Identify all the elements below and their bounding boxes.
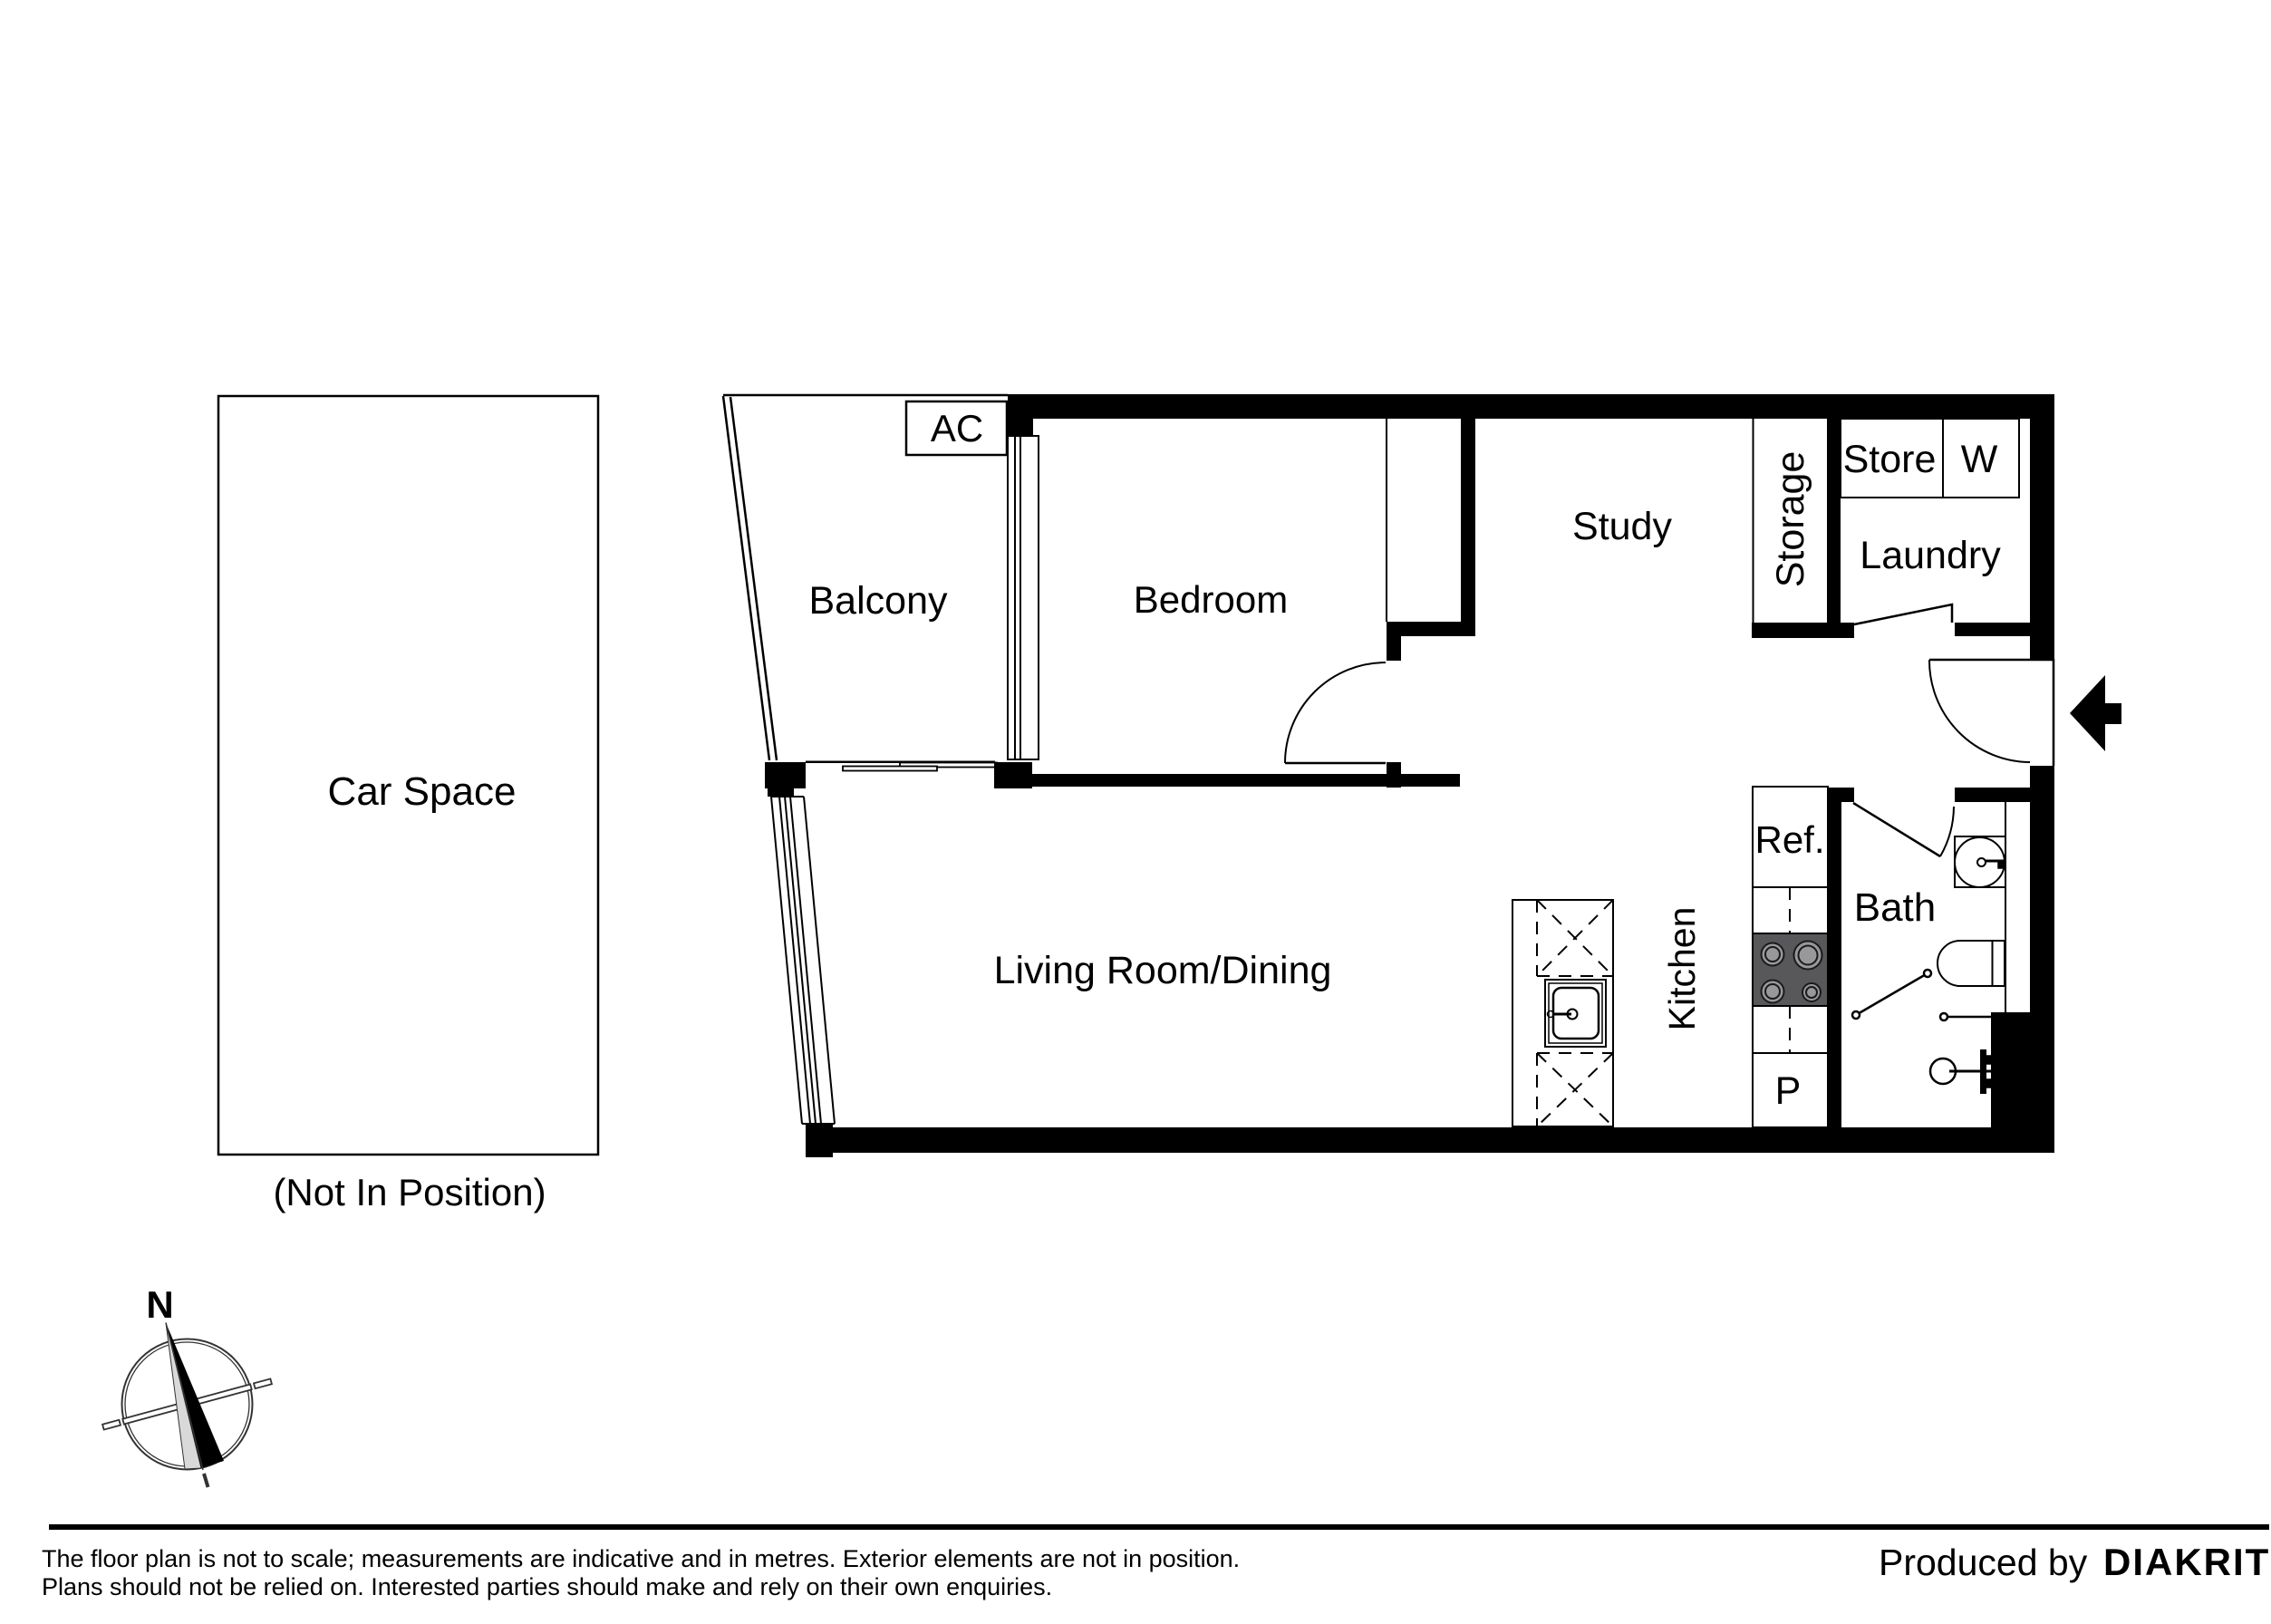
svg-text:Plans should not be relied on.: Plans should not be relied on. Intereste… bbox=[42, 1573, 1052, 1600]
svg-text:Bedroom: Bedroom bbox=[1134, 578, 1288, 621]
svg-text:Kitchen: Kitchen bbox=[1661, 907, 1703, 1031]
svg-text:Car Space: Car Space bbox=[328, 769, 517, 814]
svg-text:P: P bbox=[1775, 1069, 1802, 1113]
svg-text:Study: Study bbox=[1572, 505, 1672, 548]
svg-text:DIAKRIT: DIAKRIT bbox=[2103, 1541, 2270, 1583]
svg-text:Laundry: Laundry bbox=[1860, 534, 2001, 577]
svg-text:(Not In Position): (Not In Position) bbox=[273, 1171, 546, 1213]
svg-text:N: N bbox=[146, 1283, 173, 1326]
svg-text:Bath: Bath bbox=[1854, 885, 1937, 930]
svg-text:The floor plan is not to scale: The floor plan is not to scale; measurem… bbox=[42, 1545, 1240, 1572]
svg-text:Produced by: Produced by bbox=[1879, 1542, 2088, 1583]
svg-text:Storage: Storage bbox=[1769, 451, 1812, 588]
svg-text:Store: Store bbox=[1843, 438, 1937, 481]
svg-text:Ref.: Ref. bbox=[1754, 818, 1824, 861]
svg-text:Living Room/Dining: Living Room/Dining bbox=[994, 949, 1332, 992]
svg-text:AC: AC bbox=[931, 407, 983, 449]
svg-text:W: W bbox=[1961, 438, 1998, 481]
svg-text:Balcony: Balcony bbox=[809, 579, 948, 623]
